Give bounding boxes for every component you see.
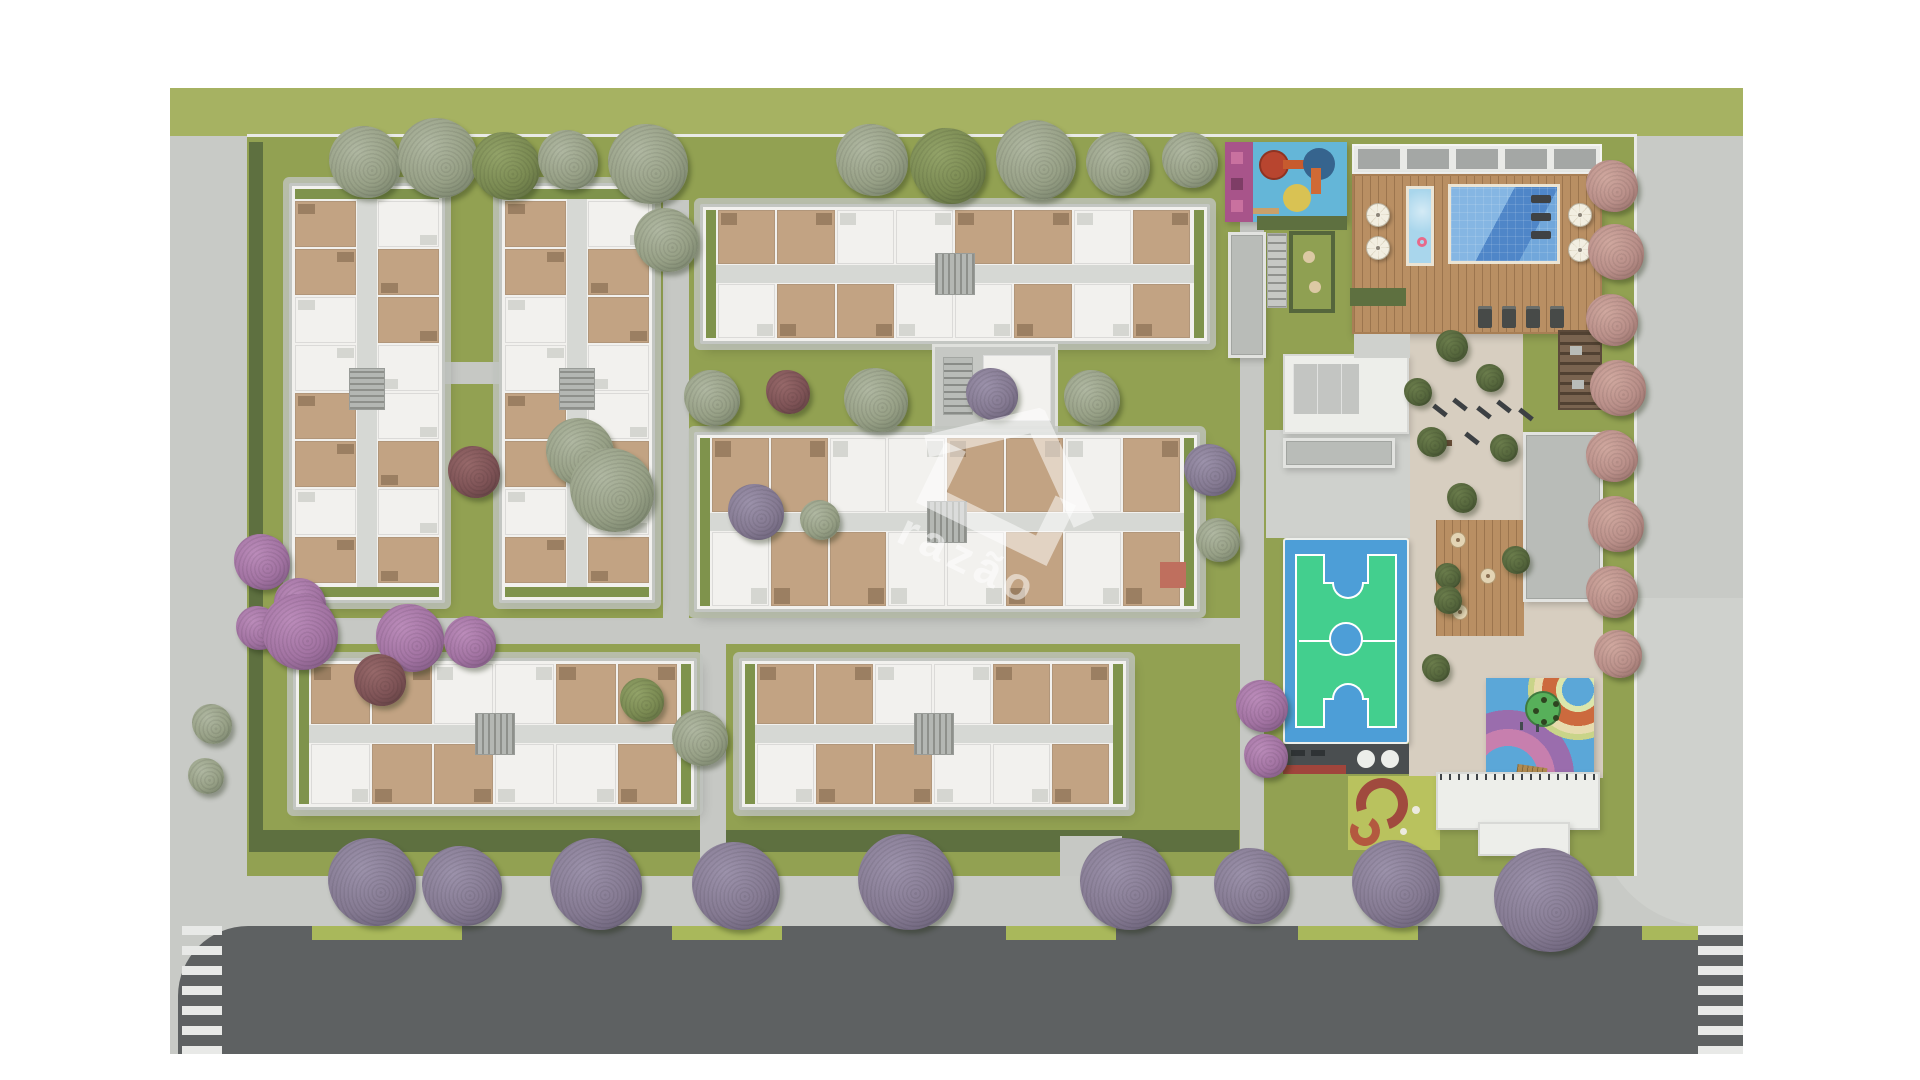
furniture [591,283,608,293]
apartment-unit [295,441,356,487]
apartment-unit [378,393,439,439]
furniture [810,441,826,457]
furniture [508,300,525,310]
table-center [1486,574,1490,578]
furniture [878,667,894,680]
apartment-unit [378,345,439,391]
apartment-unit [718,284,775,338]
gym-equipment [1464,432,1480,446]
tree [1404,378,1432,406]
apartment-unit [505,297,566,343]
furniture [1017,324,1033,336]
furniture [996,667,1012,680]
furniture [757,324,773,336]
furniture [780,324,796,336]
furniture [1172,213,1188,225]
furniture [298,492,315,502]
furniture [381,283,398,293]
furniture [937,789,953,802]
furniture [381,571,398,581]
furniture [868,588,884,604]
apartment-unit [712,532,769,606]
furniture [958,213,974,225]
wet-lounger [1531,213,1551,221]
furniture [420,235,437,245]
green-roof-strip [745,664,755,804]
furniture [298,396,315,406]
furniture [658,667,675,680]
apartment-unit [505,249,566,295]
apartment-unit [378,297,439,343]
stairs-strip [1267,233,1287,308]
furniture [352,789,369,802]
furniture [1103,588,1119,604]
crosswalk-east [1698,926,1743,1054]
key-south [1323,698,1369,728]
table-center [1458,610,1462,614]
residential-tower-2 [499,183,655,603]
curb-planting-strip [1642,926,1698,940]
apartment-unit [1052,744,1109,804]
tree [836,124,908,196]
furniture [760,667,776,680]
garden-table [1309,281,1321,293]
furniture [437,667,454,680]
tree [192,704,232,744]
sun-loungers-row [1478,306,1570,328]
green-roof-strip [299,664,309,804]
gym-equipment [1432,404,1448,418]
apartment-unit [1065,532,1122,606]
furniture [914,789,930,802]
furniture [1162,441,1178,457]
apartment-unit [505,345,566,391]
gym-equipment [1476,406,1492,420]
furniture [536,667,553,680]
bench-seat [1253,208,1279,214]
kids-ballpit [1160,562,1186,588]
furniture [833,441,849,457]
tree [1588,224,1644,280]
furniture [891,588,907,604]
furniture [375,789,392,802]
tree [1588,496,1644,552]
stair-core [914,713,954,755]
furniture [1136,324,1152,336]
furniture [508,204,525,214]
apartment-unit [1123,438,1180,512]
apartment-unit [777,210,834,264]
apartment-unit [311,744,370,804]
apartment-unit [1074,284,1131,338]
residential-block-north [700,204,1210,344]
apartment-unit [947,532,1004,606]
seat-dot [1541,697,1547,703]
tree [1162,132,1218,188]
apartment-unit [757,664,814,724]
pool-umbrella [1568,203,1592,227]
stair-core [927,501,967,543]
gym-equipment [1496,400,1512,414]
tree [1417,427,1447,457]
stair-core [349,368,385,410]
tree [234,534,290,590]
apartment-unit [378,537,439,583]
furniture [751,588,767,604]
apartment-unit [1074,210,1131,264]
apartment-unit [295,537,356,583]
furniture [474,789,491,802]
bench-seat [1311,750,1325,756]
furniture [1068,441,1084,457]
furniture [876,324,892,336]
furniture [796,789,812,802]
tree [1434,586,1462,614]
sand-circle [1283,184,1311,212]
rubber-band [1283,765,1346,774]
umbrella-pole [1376,213,1380,217]
apartment-unit [830,438,887,512]
tree [188,758,224,794]
curb-planting-strip [1298,926,1418,940]
tree [1586,160,1638,212]
apartment-unit [888,532,945,606]
furniture [1053,213,1069,225]
green-roof-strip [706,210,716,338]
tree [1594,630,1642,678]
pedestrian-path [445,362,501,384]
furniture [337,252,354,262]
tree [472,132,540,200]
tree [1586,566,1638,618]
seat-dot [1533,708,1539,714]
green-roof-strip [1194,210,1204,338]
furniture [621,789,638,802]
apartment-unit [588,537,649,583]
figure [1536,724,1539,732]
residential-tower-1 [289,183,445,603]
furniture [986,588,1002,604]
apartment-unit [837,284,894,338]
float-ring [1417,237,1427,247]
roof-panel [1456,149,1498,169]
wet-lounger [1531,195,1551,203]
toddler-playground [1225,142,1347,222]
stair-core [559,368,595,410]
furniture [420,331,437,341]
furniture [314,667,331,680]
apartment-unit [816,744,873,804]
apartment-unit [1014,284,1071,338]
tree [1502,546,1530,574]
furniture [298,204,315,214]
hedge-left-border [249,142,263,842]
tree [354,654,406,706]
service-building-roof [1228,232,1266,358]
sports-court [1283,538,1409,744]
furniture [547,252,564,262]
play-house [1231,200,1243,212]
deck-steps [1354,334,1410,358]
furniture [498,789,515,802]
furniture [774,588,790,604]
center-circle [1329,622,1363,656]
furniture [420,523,437,533]
furniture [1091,667,1107,680]
table [1570,346,1582,355]
seat-dot [1553,701,1559,707]
tree [728,484,784,540]
apartment-unit [295,393,356,439]
tree [1586,430,1638,482]
tree [766,370,810,414]
furniture [547,348,564,358]
apartment-unit [1014,210,1071,264]
sun-lounger [1502,306,1516,328]
furniture [715,441,731,457]
residential-block-south [739,658,1129,810]
crosswalk-west [182,926,222,1054]
sun-lounger [1526,306,1540,328]
apartment-unit [505,201,566,247]
tree [1476,364,1504,392]
furniture [1055,789,1071,802]
railing [1440,774,1596,780]
furniture [950,441,966,457]
furniture [994,324,1010,336]
sensory-garden [1348,776,1440,850]
tree [448,446,500,498]
pool-umbrella [1366,236,1390,260]
apartment-unit [505,537,566,583]
green-roof-strip [700,438,710,606]
table-center [1456,538,1460,542]
deck-planter [1350,288,1406,306]
furniture [337,348,354,358]
tree [1184,444,1236,496]
green-roof-strip [505,587,649,597]
furniture [973,667,989,680]
furniture [1077,213,1093,225]
furniture [547,540,564,550]
hedge-playground [1257,216,1347,230]
furniture [927,441,943,457]
tree [329,126,401,198]
umbrella-pole [1578,213,1582,217]
umbrella-pole [1376,246,1380,250]
furniture [381,475,398,485]
tree [966,368,1018,420]
asphalt-road [178,926,1743,1054]
apartment-unit [830,532,887,606]
apartment-unit [295,297,356,343]
tree [800,500,840,540]
play-house [1231,152,1243,164]
apartment-unit [378,249,439,295]
apartment-unit [1065,438,1122,512]
tables-garden [1289,231,1335,313]
apartment-unit [505,489,566,535]
tree [538,130,598,190]
curb-planting-strip [1006,926,1116,940]
site-plan-canvas: razão [0,0,1920,1080]
furniture [298,300,315,310]
furniture [816,213,832,225]
furniture [630,331,647,341]
furniture [819,789,835,802]
roof-panel [1554,149,1596,169]
furniture [559,667,576,680]
tree [1586,294,1638,346]
furniture [935,213,951,225]
gym-equipment [1518,408,1534,422]
apartment-unit [588,345,649,391]
table [1572,380,1584,389]
apartment-unit [757,744,814,804]
sun-lounger [1550,306,1564,328]
roof-panel [1407,149,1449,169]
play-house [1231,178,1243,190]
tree [684,370,740,426]
tree [1086,132,1150,196]
apartment-unit [295,249,356,295]
green-roof-strip [1113,664,1123,804]
apartment-unit [816,664,873,724]
furniture [840,213,856,225]
apartment-unit [378,201,439,247]
inner-roof [1293,364,1359,414]
table-circle [1381,750,1399,768]
gym-equipment [1452,398,1468,412]
furniture [899,324,915,336]
apartment-unit [295,201,356,247]
seat-dot [1541,719,1547,725]
tree [1196,518,1240,562]
apartment-unit [718,210,775,264]
furniture [1126,588,1142,604]
apartment-unit [372,744,431,804]
furniture [591,571,608,581]
tree [844,368,908,432]
apartment-unit [588,297,649,343]
apartment-unit [378,441,439,487]
bench-seat [1291,750,1305,756]
tree [634,208,698,272]
tree [1422,654,1450,682]
garden-table [1303,251,1315,263]
tree [1244,734,1288,778]
dining-table [1480,568,1496,584]
sun-lounger [1478,306,1492,328]
pool-umbrella [1366,203,1390,227]
furniture [855,667,871,680]
apartment-unit [1133,210,1190,264]
furniture [721,213,737,225]
apartment-unit [1052,664,1109,724]
kids-rainbow-playground [1486,678,1594,778]
roof-panel [1505,149,1547,169]
stepping-stone [1400,828,1407,835]
roof-panel [1358,149,1400,169]
apartment-unit [1006,532,1063,606]
main-swimming-pool [1448,184,1560,264]
picnic-circle [1525,691,1561,727]
furniture [1045,441,1061,457]
annex-building-roof [1283,354,1409,434]
tree [1490,434,1518,462]
furniture [1113,324,1129,336]
apartment-unit [993,664,1050,724]
tree [1236,680,1288,732]
furniture [597,789,614,802]
furniture [1009,588,1025,604]
court-bench-strip [1283,744,1409,774]
apartment-unit [1133,284,1190,338]
skylight-roof-row [1352,144,1602,174]
apartment-unit [771,532,828,606]
figure [1520,722,1523,730]
wet-lounger [1531,231,1551,239]
dining-table [1450,532,1466,548]
stepping-stone [1412,806,1420,814]
tree [1590,360,1646,416]
tree [444,616,496,668]
apartment-unit [993,744,1050,804]
furniture [337,540,354,550]
tree [1436,330,1468,362]
stair-core [475,713,515,755]
table-circle [1357,750,1375,768]
tree [1064,370,1120,426]
apartment-unit [837,210,894,264]
tree [672,710,728,766]
apartment-unit [378,489,439,535]
furniture [337,444,354,454]
furniture [420,427,437,437]
apartment-unit [295,489,356,535]
tree [620,678,664,722]
curb-planting-strip [312,926,462,940]
furniture [508,492,525,502]
seat-dot [1553,715,1559,721]
apartment-unit [1006,438,1063,512]
furniture [630,427,647,437]
key-north [1323,554,1369,584]
apartment-unit [777,284,834,338]
umbrella-pole [1578,248,1582,252]
apartment-unit [556,744,615,804]
apartment-unit [618,744,677,804]
furniture [1032,789,1048,802]
tree [1447,483,1477,513]
play-tower [1311,168,1321,194]
furniture [508,396,525,406]
kids-pool [1406,186,1434,266]
annex-small-roof [1283,438,1395,468]
apartment-unit [556,664,615,724]
apartment-unit [295,345,356,391]
stair-core [935,253,975,295]
